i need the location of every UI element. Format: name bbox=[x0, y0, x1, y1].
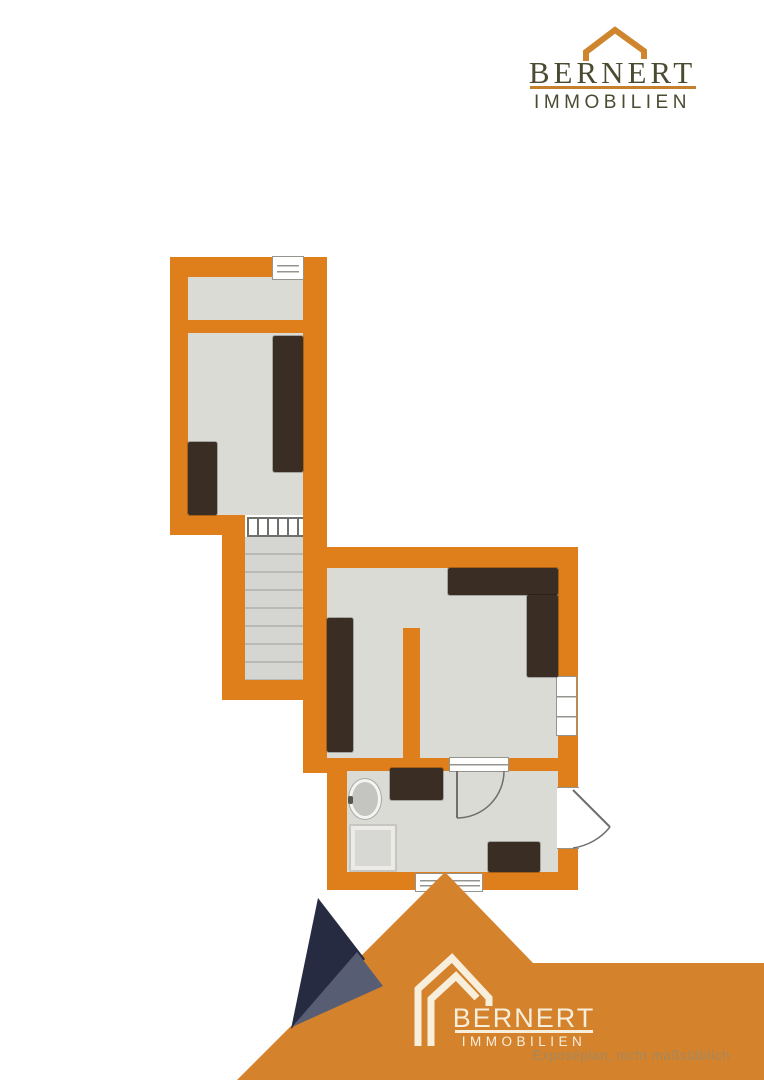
expose-page: BERNERT IMMOBILIEN bbox=[0, 0, 764, 1080]
footer-artwork bbox=[0, 0, 764, 1080]
footer-brand-divider bbox=[455, 1030, 593, 1033]
disclaimer-text: Exposéplan, nicht maßstäblich bbox=[500, 1048, 730, 1063]
footer-brand-subtitle: IMMOBILIEN bbox=[448, 1034, 600, 1049]
